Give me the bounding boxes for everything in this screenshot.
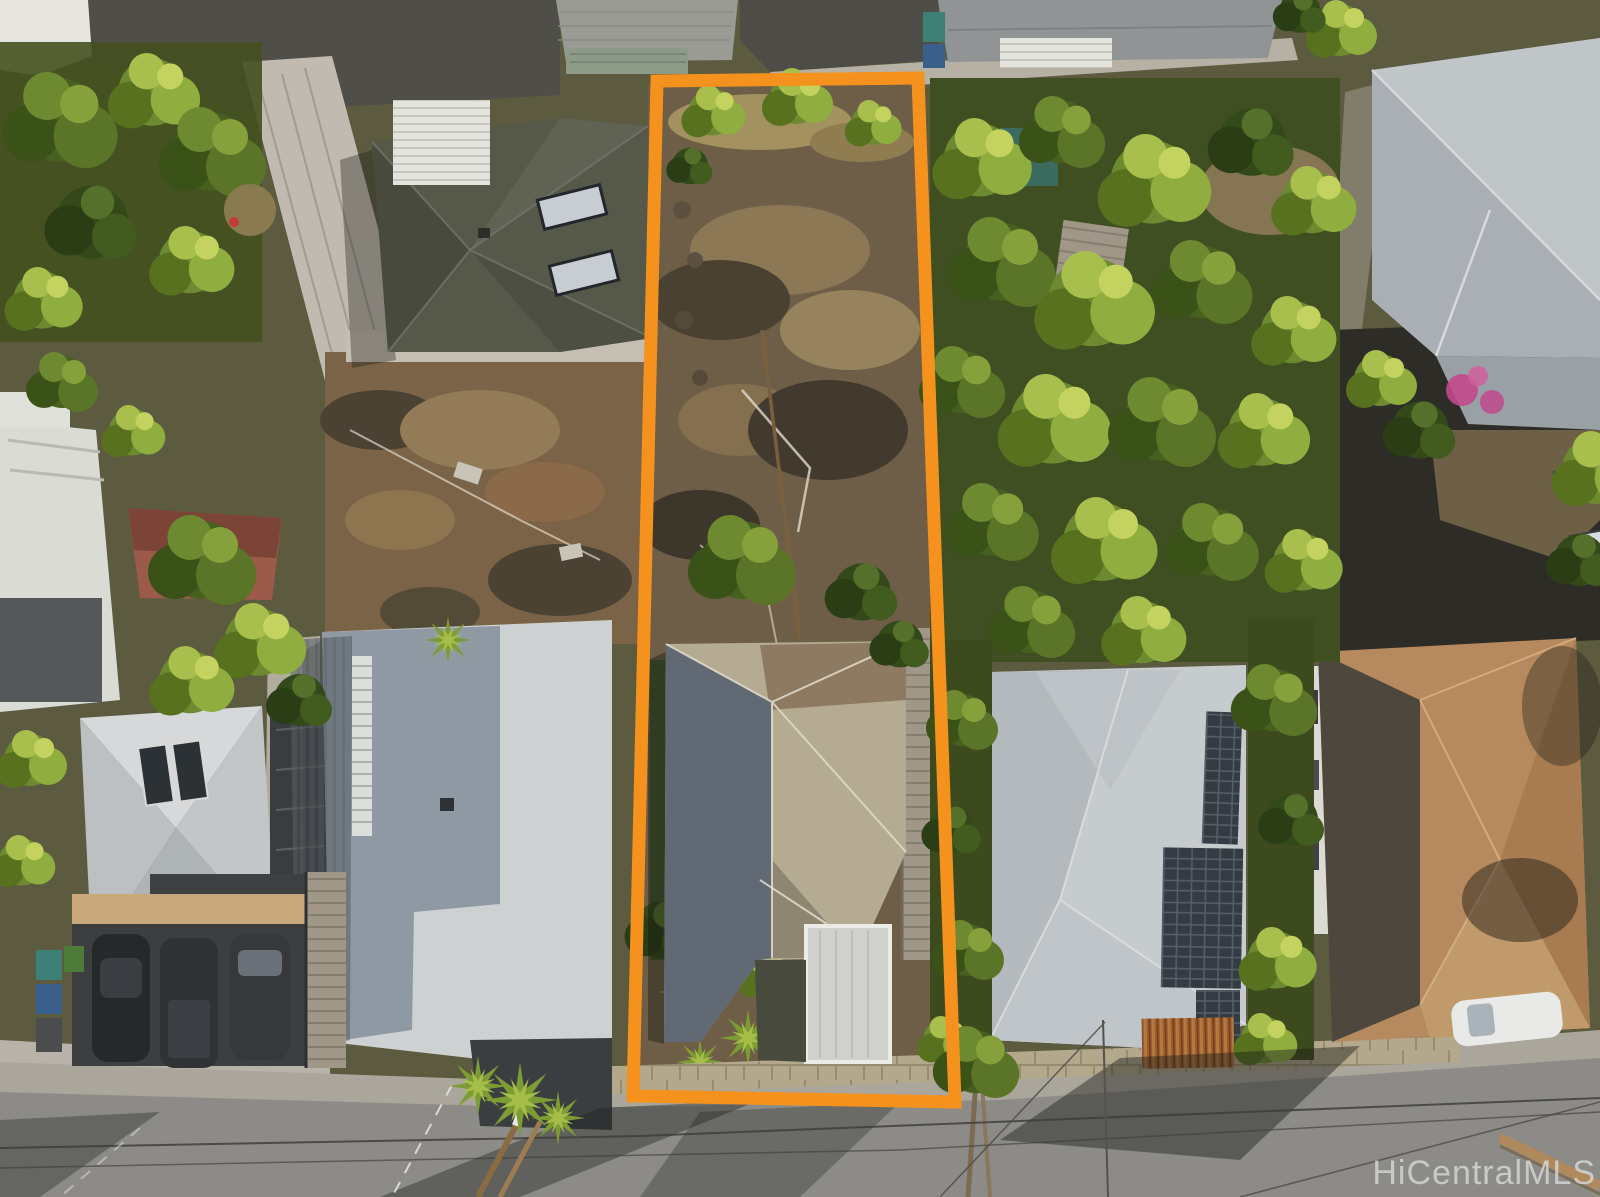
house-subject: [648, 641, 906, 1062]
bin-teal: [923, 12, 945, 42]
driveway-steps: [306, 872, 346, 1068]
house-top-left: [340, 100, 652, 368]
solar-array: [1202, 711, 1243, 844]
house-far-right: [1300, 638, 1600, 1048]
bin-teal: [36, 950, 62, 980]
carport-bottom-left: [36, 872, 346, 1068]
structure-top-of-forest: [923, 0, 1282, 68]
aerial-photo-canvas: HiCentralMLS: [0, 0, 1600, 1197]
bin-blue: [36, 984, 62, 1014]
bin-blue: [923, 44, 945, 68]
watermark-text: HiCentralMLS: [1372, 1154, 1596, 1192]
solar-array: [1161, 847, 1243, 988]
pergola: [393, 100, 490, 185]
house-right: [968, 665, 1246, 1069]
aerial-photo: HiCentralMLS: [0, 0, 1600, 1197]
carport-beam: [72, 894, 314, 928]
carport-roof: [806, 926, 890, 1062]
